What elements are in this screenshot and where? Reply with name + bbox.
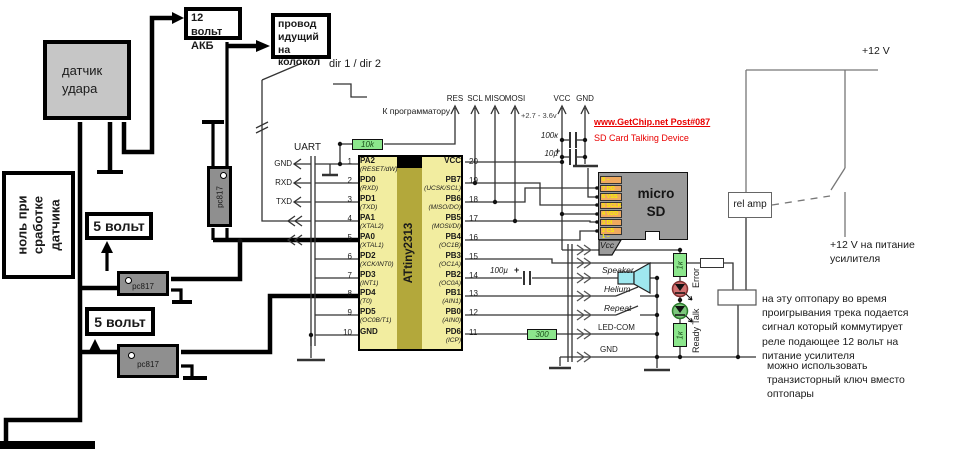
mcu-pin-right-17: PB5(MOSI/DI)17 bbox=[397, 214, 493, 233]
opto-relay-box bbox=[718, 290, 756, 305]
programmer-label: К программатору bbox=[362, 106, 450, 116]
five-volt-box-1: 5 вольт bbox=[85, 212, 153, 240]
opto1-pin1-dot bbox=[125, 277, 132, 284]
mcu-pin-right-19: PB7(UCSK/SCL)19 bbox=[397, 176, 493, 195]
resistor-300: 300 bbox=[527, 329, 557, 340]
mcu-pin-right-20: VCC20 bbox=[397, 157, 493, 176]
opto2-pin1-dot bbox=[128, 352, 135, 359]
signal-gnd: GND bbox=[600, 345, 618, 354]
programmer-mosi: MOSI bbox=[502, 94, 528, 103]
sd-voltage-label: +2.7 - 3.6v bbox=[521, 111, 557, 120]
mcu-pin-right-15: PB3(OC1A)15 bbox=[397, 252, 493, 271]
relay-dashed-link bbox=[772, 196, 830, 205]
ready-led-label: Ready Talk bbox=[691, 309, 701, 353]
sd-pad-8: 8 – bbox=[600, 176, 622, 184]
resistor-10k: 10k bbox=[352, 139, 383, 150]
error-led-label: Error bbox=[691, 268, 701, 288]
v12-label: +12 V bbox=[862, 45, 890, 57]
uart-pin-txd: TXD bbox=[266, 197, 292, 206]
bell-wire-label: провод идущий на колокол bbox=[275, 17, 327, 70]
uart-label: UART bbox=[294, 142, 321, 153]
mcu-pin-right-11: PD6(ICP)11 bbox=[397, 328, 493, 347]
ground-bars bbox=[97, 122, 224, 378]
optocoupler-vertical: pc817 bbox=[207, 166, 232, 227]
mcu-pin-right-13: PB1(AIN1)13 bbox=[397, 289, 493, 308]
cap-10u-polarity: + bbox=[555, 146, 560, 156]
sd-pad-6: 6 VSS bbox=[600, 193, 622, 201]
schematic-canvas: датчик удара 12 вольт АКБ провод идущий … bbox=[0, 0, 960, 461]
optocoupler-1: pc817 bbox=[117, 271, 169, 296]
signal-led-com: LED-COM bbox=[598, 323, 635, 332]
cap-100k-label: 100к bbox=[528, 131, 558, 140]
sd-pad-7: 7 DO bbox=[600, 185, 622, 193]
rel-amp-box: rel amp bbox=[728, 192, 772, 218]
bottom-ground-bar bbox=[0, 441, 95, 449]
getchip-link[interactable]: www.GetChip.net Post#087 bbox=[594, 117, 710, 127]
error-led-icon bbox=[673, 282, 693, 301]
optocoupler-2: pc817 bbox=[117, 344, 179, 378]
zero-note-box: ноль при сработке датчика bbox=[2, 171, 75, 279]
sd-pad-3: 3 DI bbox=[600, 219, 622, 227]
device-title: SD Card Talking Device bbox=[594, 133, 689, 143]
signal-speaker: Speaker bbox=[602, 265, 634, 275]
five-volt-label-2: 5 вольт bbox=[89, 311, 151, 333]
shock-sensor-box: датчик удара bbox=[43, 40, 131, 120]
ready-led-icon bbox=[673, 304, 693, 323]
mcu-pin-right-16: PB4(OC1B)16 bbox=[397, 233, 493, 252]
five-volt-label-1: 5 вольт bbox=[89, 216, 149, 237]
uart-pin-gnd: GND bbox=[266, 159, 292, 168]
resistor-1k-error: 1к bbox=[673, 253, 687, 277]
zero-note-label: ноль при сработке датчика bbox=[14, 173, 63, 277]
sd-pad-4: 4 VDD bbox=[600, 210, 622, 218]
cap-100u-polarity: + bbox=[514, 265, 519, 275]
opto-label-vertical: pc817 bbox=[215, 172, 224, 222]
cap-100u-label: 100µ bbox=[490, 266, 508, 275]
programmer-res: RES bbox=[444, 94, 466, 103]
signal-vcc: Vcc bbox=[600, 240, 614, 250]
sd-pad-5: 5 SCLK bbox=[600, 202, 622, 210]
battery-box: 12 вольт АКБ bbox=[184, 7, 242, 40]
sd-notch bbox=[645, 231, 660, 240]
uart-pin-rxd: RXD bbox=[266, 178, 292, 187]
v12-amp-label: +12 V на питание усилителя bbox=[830, 238, 915, 266]
sd-card: 8 – 7 DO 6 VSS 5 SCLK 4 VDD 3 DI 2 CS 1 … bbox=[598, 172, 688, 240]
power-gnd-label: GND bbox=[574, 94, 596, 103]
sd-card-title: microSD bbox=[629, 185, 683, 220]
power-vcc-label: VCC bbox=[551, 94, 573, 103]
signal-helium: Helium bbox=[604, 284, 630, 294]
bell-wire-box: провод идущий на колокол bbox=[271, 13, 331, 59]
transistor-note: можно использовать транзисторный ключ вм… bbox=[767, 359, 937, 402]
battery-label: 12 вольт АКБ bbox=[188, 11, 238, 54]
dir-switch-label: dir 1 / dir 2 bbox=[329, 58, 381, 70]
opto-note: на эту оптопару во время проигрывания тр… bbox=[762, 292, 932, 363]
shock-sensor-label: датчик удара bbox=[47, 44, 127, 97]
resistor-1k-ready: 1к bbox=[673, 323, 687, 347]
signal-repeat: Repeat bbox=[604, 303, 631, 313]
five-volt-box-2: 5 вольт bbox=[85, 307, 155, 336]
resistor-opto bbox=[700, 258, 724, 268]
mcu-pin-right-12: PB0(AIN0)12 bbox=[397, 308, 493, 327]
mcu-pin-right-18: PB6(MISO/DO)18 bbox=[397, 195, 493, 214]
